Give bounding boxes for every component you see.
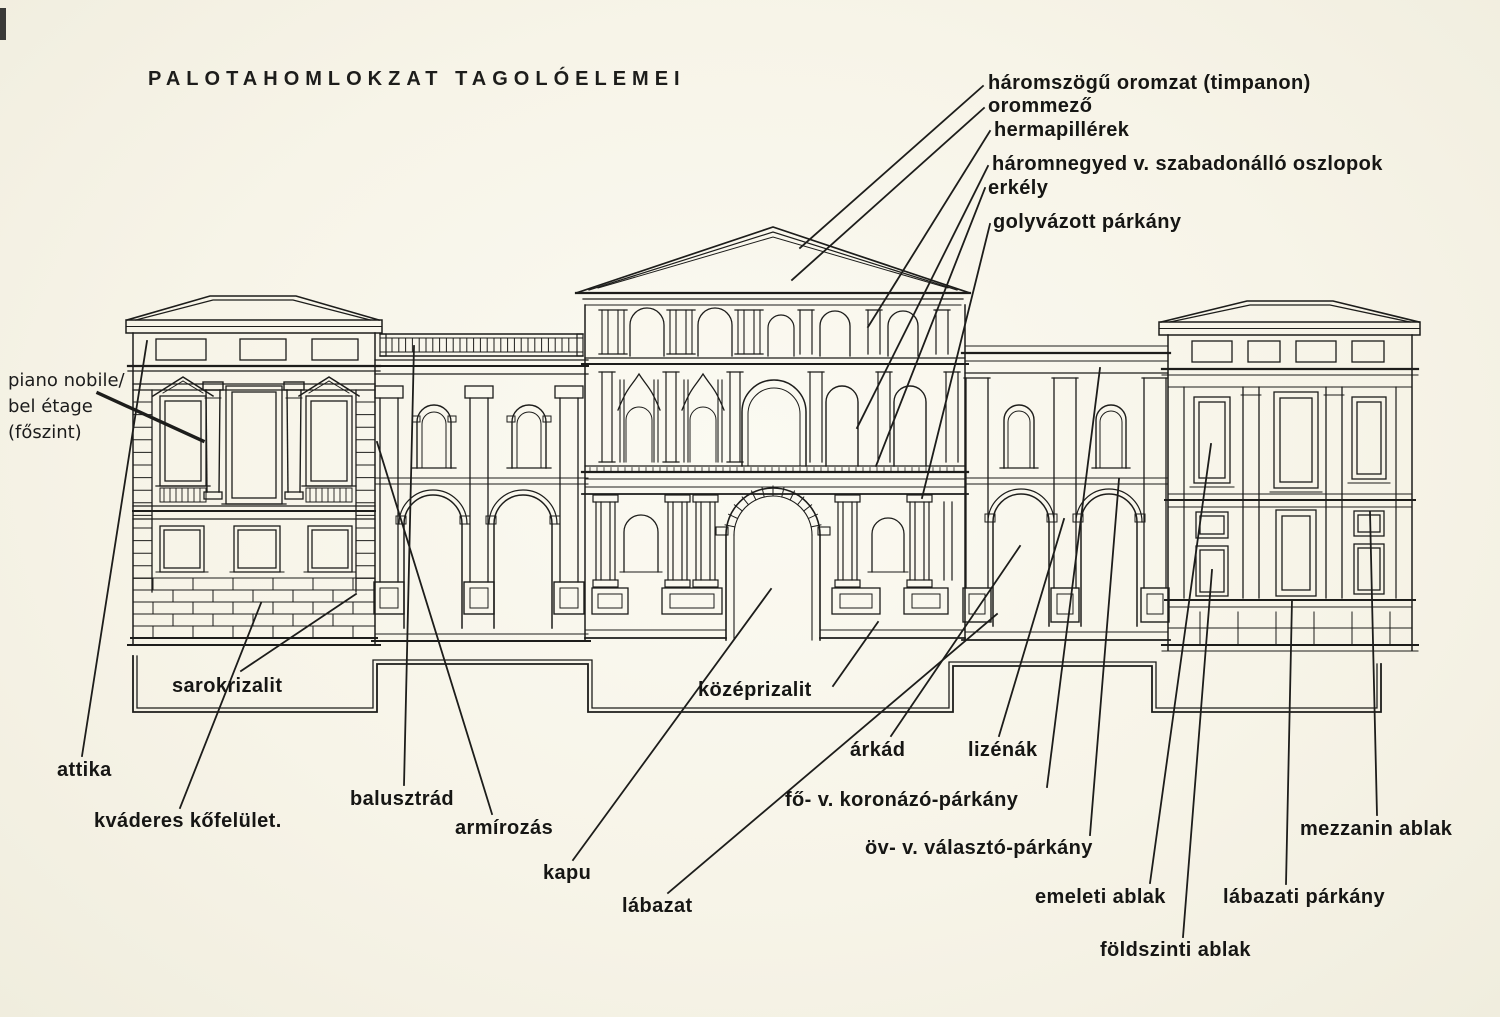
label-arkad: árkád: [850, 739, 905, 762]
leader-fo-parkany: [1047, 368, 1100, 787]
label-kapu: kapu: [543, 862, 591, 885]
label-timpanon: háromszögű oromzat (timpanon): [988, 72, 1311, 95]
central-risalit: [576, 227, 970, 640]
label-mezzanin-ablak: mezzanin ablak: [1300, 818, 1452, 841]
label-orommezo: orommező: [988, 95, 1092, 118]
diagram-page: PALOTAHOMLOKZAT TAGOLÓELEMEI piano nobil…: [0, 0, 1500, 1017]
leader-kvaderes: [180, 603, 261, 808]
right-corner-pavilion: [1159, 301, 1420, 651]
leader-labazati-parkany: [1286, 600, 1292, 884]
label-piano-nobile: piano nobile/ bel étage (főszint): [8, 368, 125, 446]
left-wing-arcade: [372, 334, 590, 641]
label-lizenak: lizénák: [968, 739, 1038, 762]
right-wing-arcade: [962, 346, 1170, 640]
label-labazati-parkany: lábazati párkány: [1223, 886, 1385, 909]
leader-balusztrad: [404, 346, 414, 785]
label-hermapillerek: hermapillérek: [994, 119, 1129, 142]
label-piano-nobile-line2: bel étage: [8, 394, 125, 420]
label-kvaderes: kváderes kőfelület.: [94, 810, 282, 833]
label-golyvazott: golyvázott párkány: [993, 211, 1181, 234]
leader-sarokrizalit: [241, 594, 356, 671]
label-piano-nobile-line3: (főszint): [8, 420, 125, 446]
label-labazat: lábazat: [622, 895, 693, 918]
label-balusztrad: balusztrád: [350, 788, 454, 811]
leader-mezzanin-ablak: [1370, 512, 1377, 815]
label-foldszinti-ablak: földszinti ablak: [1100, 939, 1251, 962]
label-oszlopok: háromnegyed v. szabadonálló oszlopok: [992, 153, 1383, 176]
page-title: PALOTAHOMLOKZAT TAGOLÓELEMEI: [148, 68, 686, 91]
label-kozeprizalit: középrizalit: [698, 679, 812, 702]
left-corner-pavilion: [126, 296, 382, 645]
label-armirozas: armírozás: [455, 817, 553, 840]
label-attika: attika: [57, 759, 112, 782]
label-fo-parkany: fő- v. koronázó-párkány: [785, 789, 1018, 812]
leader-emeleti-ablak: [1150, 444, 1211, 883]
label-piano-nobile-line1: piano nobile/: [8, 368, 125, 394]
label-ov-parkany: öv- v. választó-párkány: [865, 837, 1093, 860]
leader-timpanon: [800, 86, 983, 248]
label-emeleti-ablak: emeleti ablak: [1035, 886, 1166, 909]
leader-erkely: [876, 188, 985, 466]
leader-foldszinti-ablak: [1183, 570, 1212, 937]
leader-armirozas: [377, 442, 492, 814]
leader-kozeprizalit: [833, 622, 878, 686]
leader-lizenak: [999, 519, 1064, 736]
label-erkely: erkély: [988, 177, 1048, 200]
leader-orommezo: [792, 108, 984, 280]
label-sarokrizalit: sarokrizalit: [172, 675, 282, 698]
leader-ov-parkany: [1090, 479, 1119, 835]
